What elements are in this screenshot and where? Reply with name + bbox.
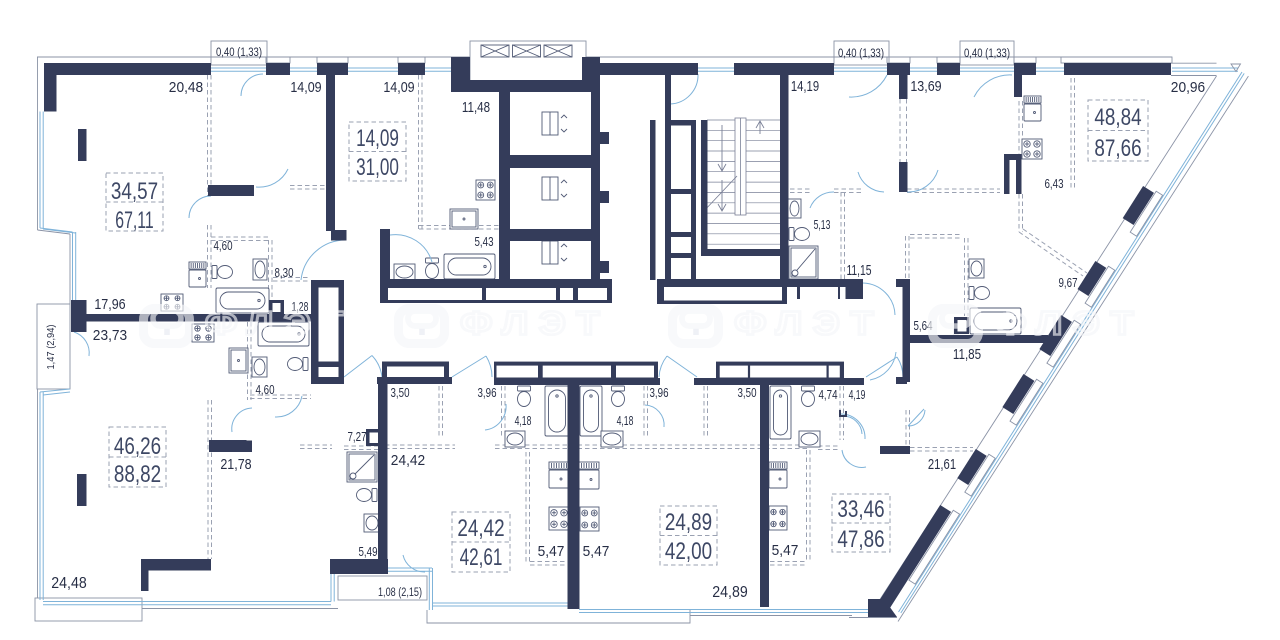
svg-text:3,50: 3,50 bbox=[738, 385, 757, 400]
svg-text:ФЛЭТ: ФЛЭТ bbox=[734, 305, 884, 342]
svg-text:9,67: 9,67 bbox=[1059, 275, 1078, 290]
svg-text:11,85: 11,85 bbox=[953, 346, 981, 363]
svg-text:4,74: 4,74 bbox=[819, 387, 838, 402]
svg-text:48,84: 48,84 bbox=[1094, 104, 1141, 131]
svg-text:11,48: 11,48 bbox=[462, 99, 490, 116]
svg-text:0,40 (1,33): 0,40 (1,33) bbox=[964, 48, 1010, 60]
svg-text:3,50: 3,50 bbox=[391, 385, 410, 400]
svg-text:3,96: 3,96 bbox=[650, 385, 669, 400]
svg-text:4,18: 4,18 bbox=[617, 413, 634, 428]
svg-text:24,48: 24,48 bbox=[51, 575, 87, 592]
svg-text:1,47 (2,94): 1,47 (2,94) bbox=[46, 325, 57, 370]
svg-text:24,42: 24,42 bbox=[457, 515, 504, 542]
svg-text:4,18: 4,18 bbox=[515, 413, 532, 428]
svg-text:7,27: 7,27 bbox=[348, 429, 367, 444]
svg-text:8,30: 8,30 bbox=[275, 265, 294, 280]
svg-text:14,09: 14,09 bbox=[383, 79, 414, 96]
svg-text:46,26: 46,26 bbox=[114, 433, 161, 460]
svg-text:87,66: 87,66 bbox=[1094, 135, 1141, 162]
svg-text:14,19: 14,19 bbox=[791, 78, 819, 95]
svg-text:0,40 (1,33): 0,40 (1,33) bbox=[838, 48, 884, 60]
svg-text:0,40 (1,33): 0,40 (1,33) bbox=[216, 47, 262, 59]
svg-text:88,82: 88,82 bbox=[114, 461, 161, 488]
svg-text:13,69: 13,69 bbox=[910, 78, 941, 95]
svg-text:24,42: 24,42 bbox=[391, 452, 425, 469]
svg-text:5,47: 5,47 bbox=[772, 542, 799, 559]
svg-text:3,96: 3,96 bbox=[478, 385, 497, 400]
svg-text:11,15: 11,15 bbox=[846, 262, 871, 279]
svg-text:31,00: 31,00 bbox=[356, 154, 399, 181]
svg-text:20,48: 20,48 bbox=[169, 79, 203, 96]
svg-text:5,47: 5,47 bbox=[583, 543, 610, 560]
svg-text:20,96: 20,96 bbox=[1171, 79, 1205, 96]
svg-text:14,09: 14,09 bbox=[290, 79, 321, 96]
svg-text:24,89: 24,89 bbox=[712, 584, 748, 601]
svg-text:ФЛЭТ: ФЛЭТ bbox=[994, 305, 1144, 342]
svg-text:21,78: 21,78 bbox=[220, 456, 251, 473]
svg-text:4,60: 4,60 bbox=[256, 382, 275, 397]
svg-text:47,86: 47,86 bbox=[837, 526, 884, 553]
svg-text:17,96: 17,96 bbox=[94, 296, 125, 313]
svg-text:6,43: 6,43 bbox=[1045, 176, 1064, 191]
svg-text:5,49: 5,49 bbox=[359, 544, 378, 559]
svg-text:14,09: 14,09 bbox=[356, 125, 399, 152]
svg-text:21,61: 21,61 bbox=[928, 456, 956, 473]
svg-text:42,00: 42,00 bbox=[665, 538, 712, 565]
svg-text:4,19: 4,19 bbox=[849, 387, 866, 402]
svg-text:23,73: 23,73 bbox=[93, 327, 127, 344]
svg-text:ФЛЭТ: ФЛЭТ bbox=[205, 305, 355, 342]
svg-text:67,11: 67,11 bbox=[115, 207, 153, 234]
svg-text:34,57: 34,57 bbox=[111, 178, 158, 205]
svg-text:33,46: 33,46 bbox=[837, 496, 884, 523]
svg-text:42,61: 42,61 bbox=[460, 544, 503, 571]
svg-text:4,60: 4,60 bbox=[214, 238, 233, 253]
svg-text:1,08 (2,15): 1,08 (2,15) bbox=[378, 587, 422, 599]
svg-text:24,89: 24,89 bbox=[665, 509, 712, 536]
svg-text:5,43: 5,43 bbox=[475, 234, 494, 249]
svg-text:5,13: 5,13 bbox=[814, 217, 831, 232]
svg-text:ФЛЭТ: ФЛЭТ bbox=[460, 305, 610, 342]
svg-text:5,47: 5,47 bbox=[538, 543, 565, 560]
